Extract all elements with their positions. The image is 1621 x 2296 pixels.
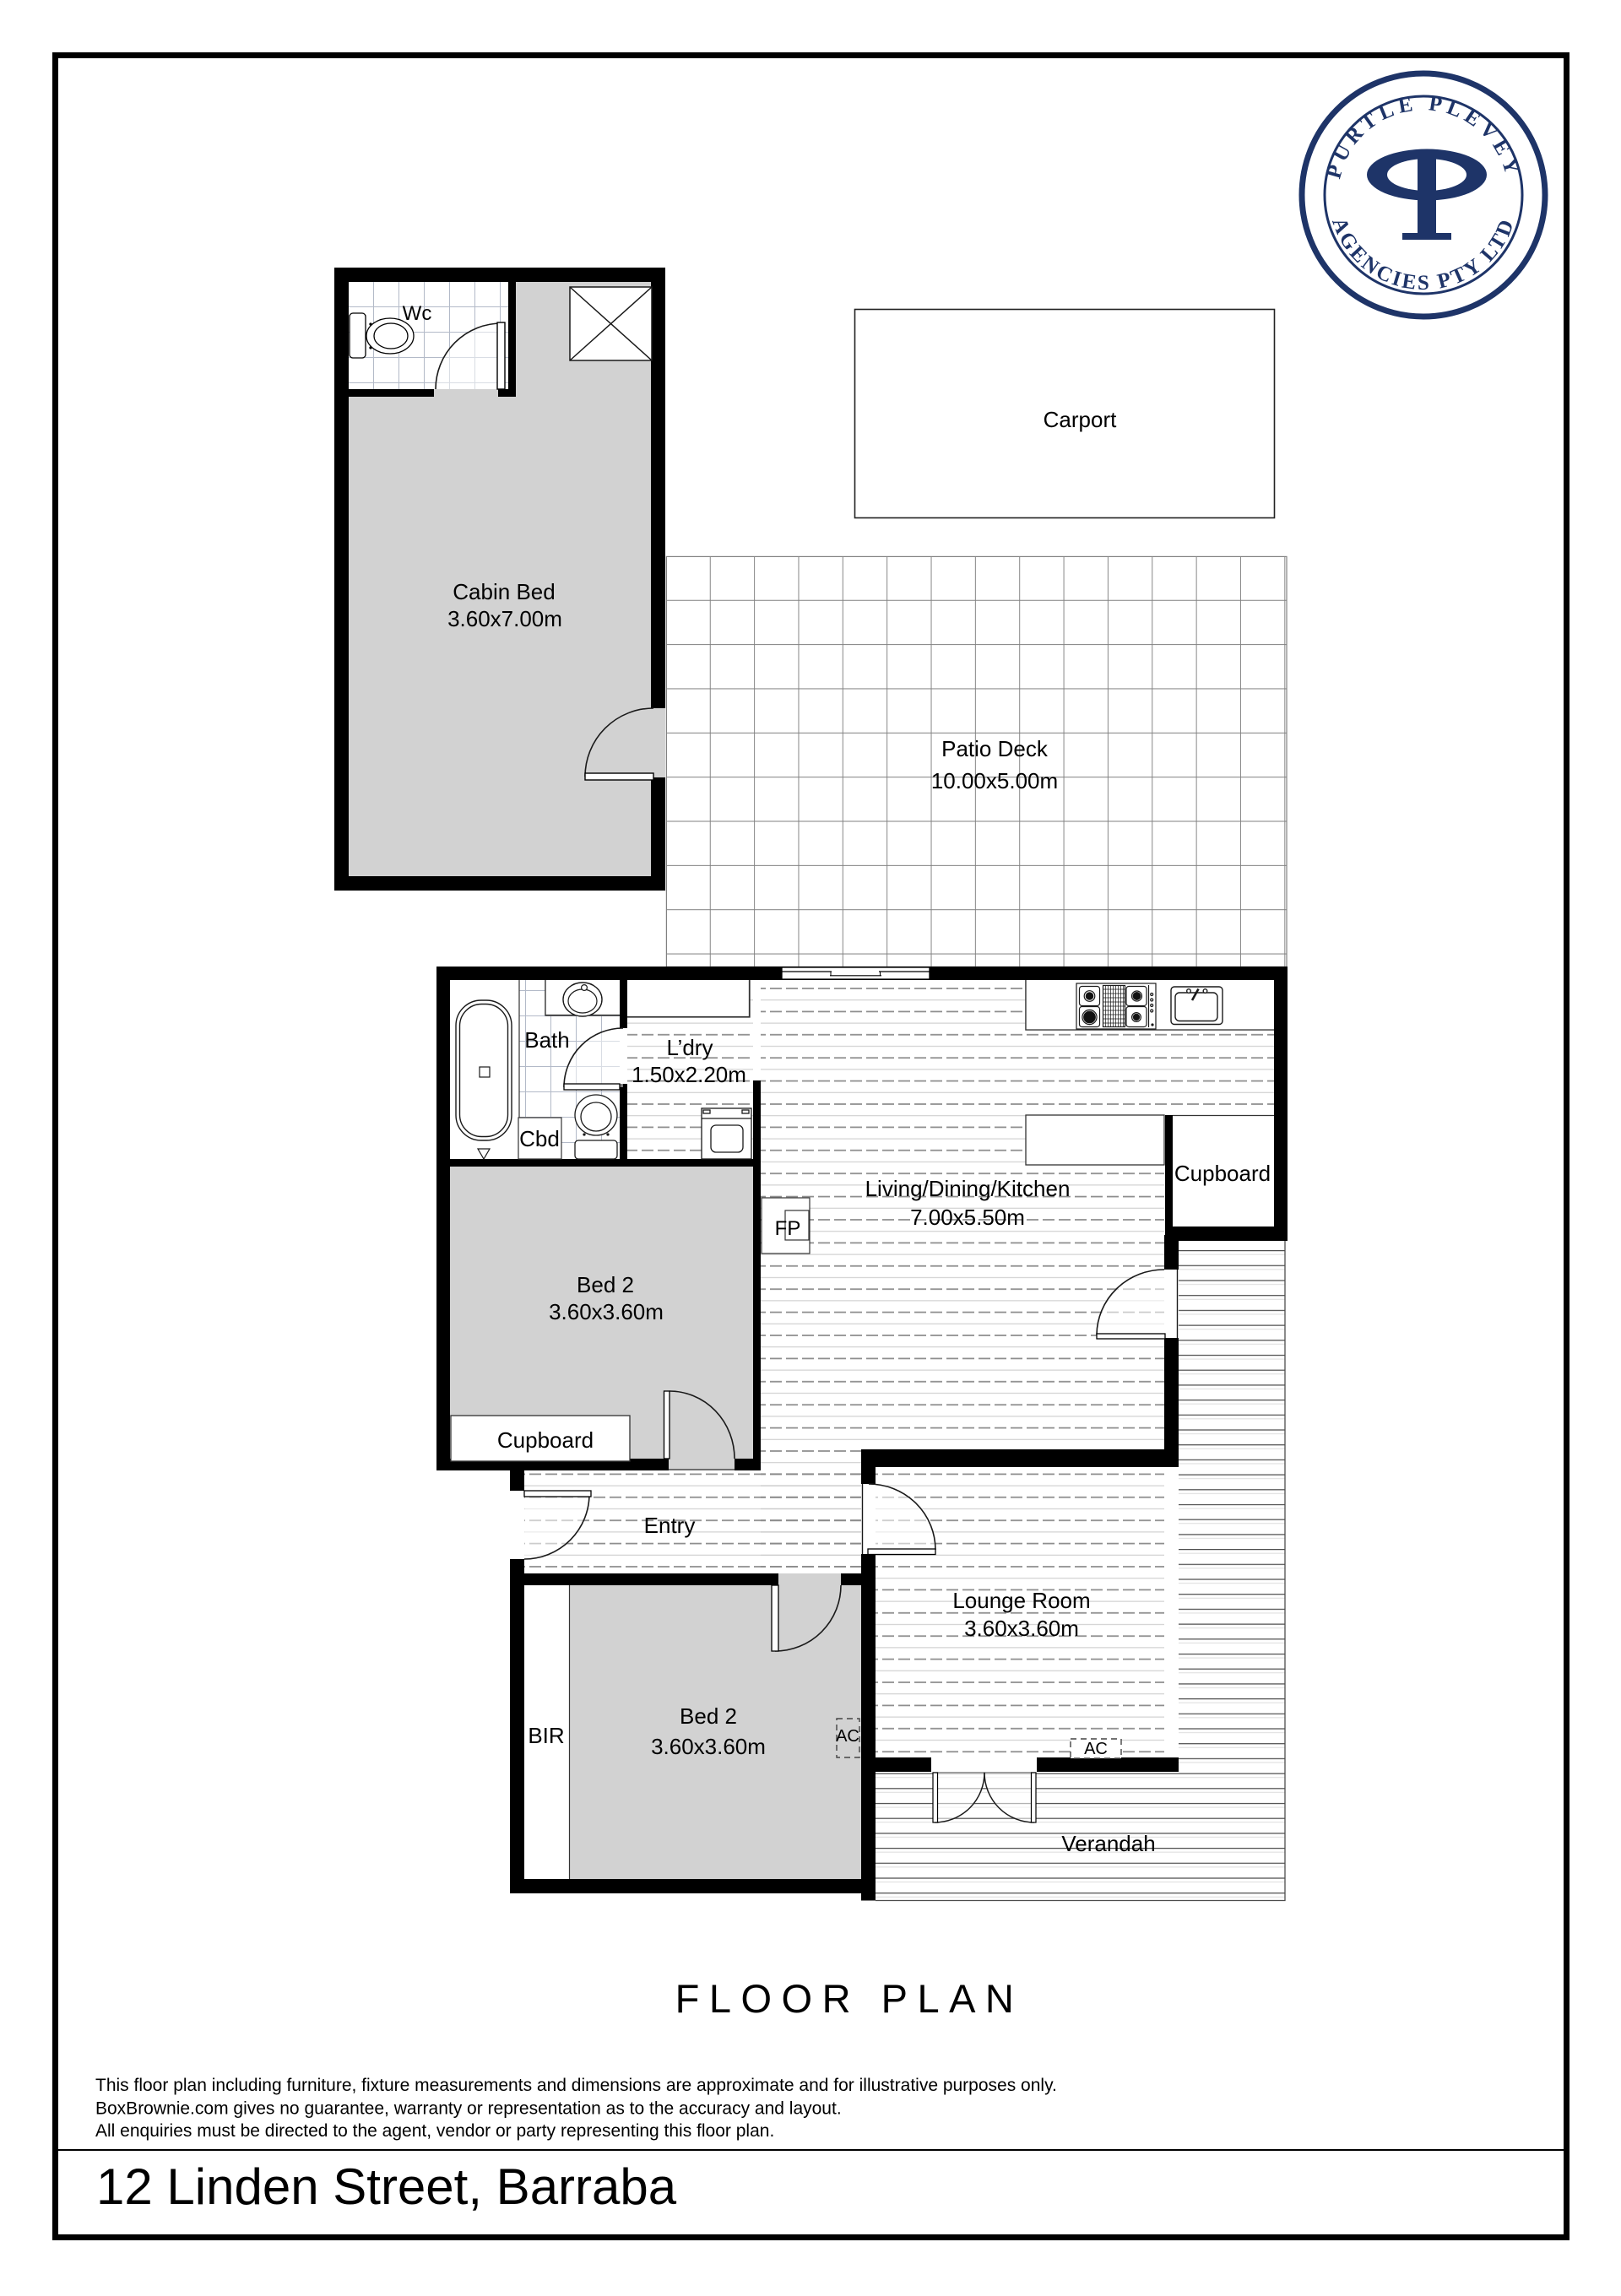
svg-text:Lounge Room: Lounge Room bbox=[952, 1588, 1090, 1613]
svg-text:FLOOR PLAN: FLOOR PLAN bbox=[675, 1976, 1024, 2021]
svg-text:Wc: Wc bbox=[403, 302, 432, 325]
svg-text:AC: AC bbox=[836, 1727, 859, 1746]
svg-text:Cupboard: Cupboard bbox=[1174, 1161, 1271, 1186]
svg-text:Bath: Bath bbox=[524, 1027, 570, 1053]
svg-text:7.00x5.50m: 7.00x5.50m bbox=[910, 1205, 1025, 1230]
svg-text:Cupboard: Cupboard bbox=[497, 1427, 594, 1453]
svg-text:Verandah: Verandah bbox=[1061, 1831, 1155, 1856]
svg-text:BoxBrownie.com gives no guaran: BoxBrownie.com gives no guarantee, warra… bbox=[95, 2099, 842, 2119]
svg-text:3.60x7.00m: 3.60x7.00m bbox=[447, 606, 562, 631]
svg-text:L’dry: L’dry bbox=[667, 1035, 713, 1060]
svg-text:Patio Deck: Patio Deck bbox=[941, 736, 1049, 761]
svg-text:Cabin Bed: Cabin Bed bbox=[453, 579, 555, 604]
svg-text:BIR: BIR bbox=[528, 1723, 564, 1748]
svg-text:1.50x2.20m: 1.50x2.20m bbox=[632, 1062, 746, 1087]
svg-text:FP: FP bbox=[775, 1217, 801, 1240]
svg-text:10.00x5.00m: 10.00x5.00m bbox=[931, 768, 1058, 793]
svg-text:Cbd: Cbd bbox=[519, 1126, 560, 1151]
svg-text:Entry: Entry bbox=[644, 1513, 696, 1538]
svg-text:Living/Dining/Kitchen: Living/Dining/Kitchen bbox=[865, 1176, 1071, 1201]
svg-text:AC: AC bbox=[1084, 1740, 1108, 1758]
svg-text:12 Linden Street, Barraba: 12 Linden Street, Barraba bbox=[96, 2158, 677, 2215]
svg-text:Carport: Carport bbox=[1044, 407, 1117, 432]
svg-text:3.60x3.60m: 3.60x3.60m bbox=[651, 1734, 766, 1759]
svg-text:Bed 2: Bed 2 bbox=[680, 1703, 737, 1729]
svg-text:All enquiries must be directed: All enquiries must be directed to the ag… bbox=[95, 2121, 774, 2141]
svg-text:3.60x3.60m: 3.60x3.60m bbox=[549, 1299, 664, 1324]
svg-text:This floor plan including furn: This floor plan including furniture, fix… bbox=[95, 2076, 1057, 2095]
svg-text:3.60x3.60m: 3.60x3.60m bbox=[964, 1616, 1079, 1641]
svg-text:Bed 2: Bed 2 bbox=[577, 1272, 634, 1297]
